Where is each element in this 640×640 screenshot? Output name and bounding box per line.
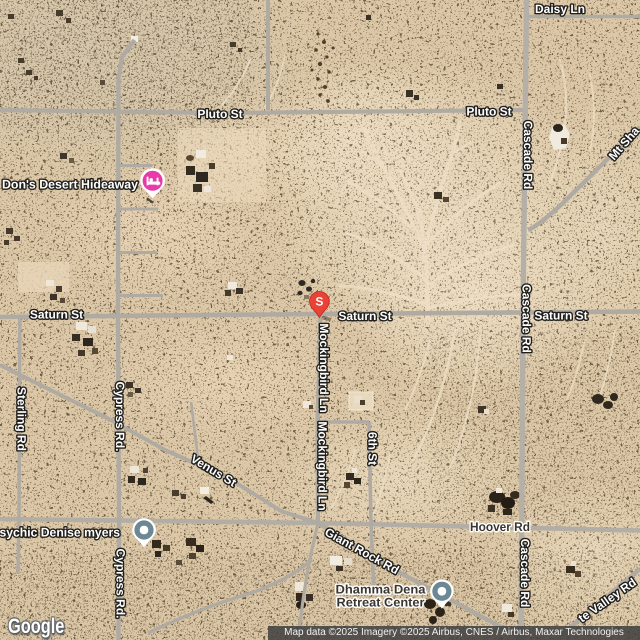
svg-text:Cypress Rd.: Cypress Rd. (114, 548, 128, 618)
svg-text:psychic Denise myers: psychic Denise myers (0, 526, 120, 540)
svg-text:Mockingbird Ln: Mockingbird Ln (317, 323, 331, 412)
svg-text:S: S (315, 294, 323, 308)
svg-text:Don's Desert Hideaway: Don's Desert Hideaway (2, 178, 138, 192)
svg-text:Pluto St: Pluto St (466, 105, 511, 119)
svg-text:Saturn St: Saturn St (30, 308, 83, 322)
svg-text:Pluto St: Pluto St (197, 107, 242, 121)
svg-text:Retreat Center: Retreat Center (337, 596, 425, 610)
svg-text:Dhamma Dena: Dhamma Dena (336, 583, 427, 597)
svg-text:Cascade Rd: Cascade Rd (521, 121, 535, 190)
svg-text:Sterling Rd: Sterling Rd (15, 387, 29, 451)
svg-text:Cypress Rd.: Cypress Rd. (113, 381, 127, 451)
svg-text:Hoover Rd: Hoover Rd (470, 520, 530, 534)
svg-text:Mockingbird Ln: Mockingbird Ln (316, 421, 330, 510)
svg-text:Saturn St: Saturn St (534, 309, 587, 323)
svg-text:Saturn St: Saturn St (338, 309, 391, 323)
svg-text:Cascade Rd: Cascade Rd (518, 539, 532, 608)
svg-text:6th St: 6th St (366, 432, 380, 465)
svg-text:Cascade Rd: Cascade Rd (520, 284, 534, 353)
svg-text:Daisy Ln: Daisy Ln (535, 2, 585, 16)
